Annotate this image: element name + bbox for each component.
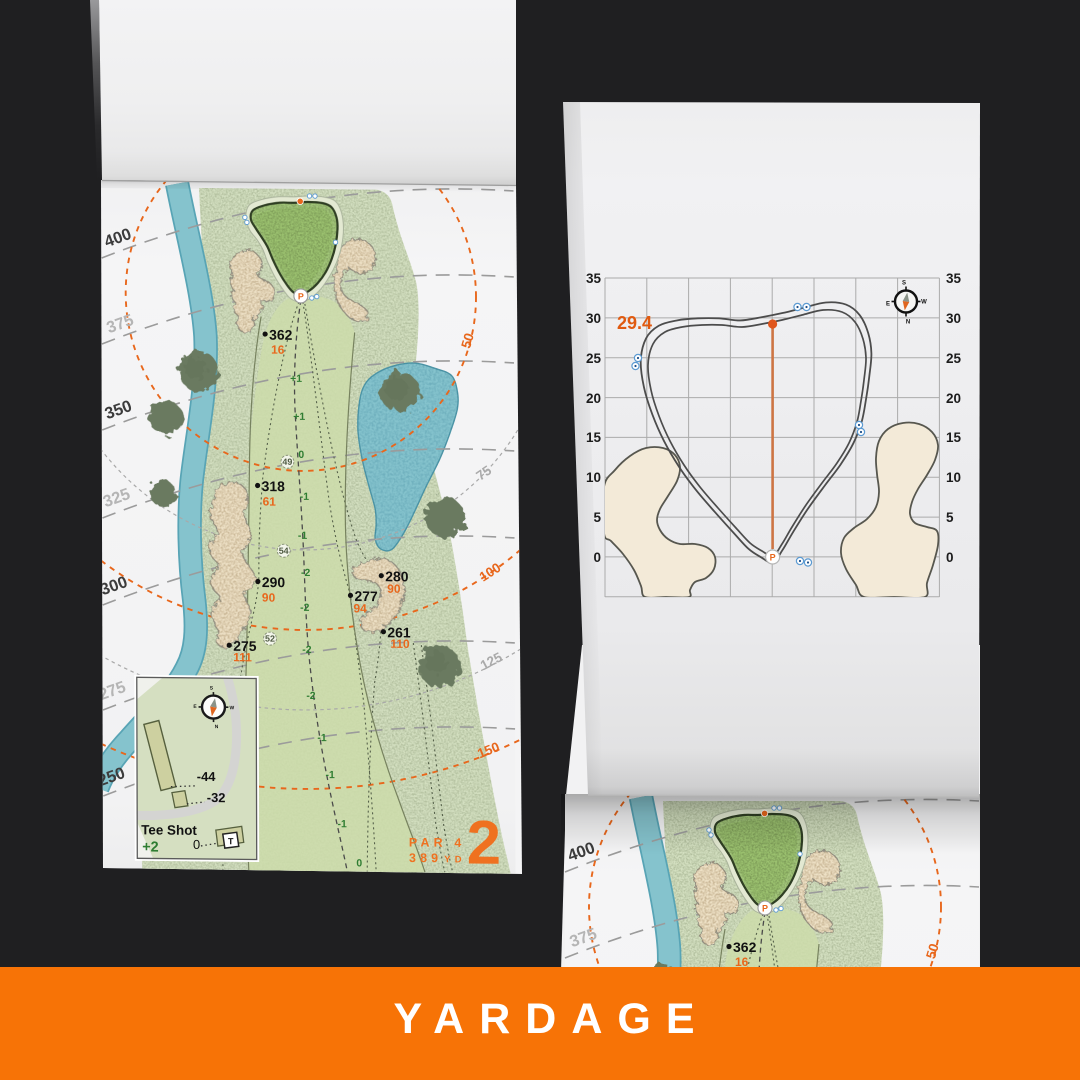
svg-text:S: S [902, 281, 906, 287]
svg-text:0: 0 [946, 550, 954, 565]
svg-text:W: W [921, 300, 927, 306]
svg-text:25: 25 [586, 351, 602, 366]
svg-text:20: 20 [946, 391, 961, 406]
svg-text:10: 10 [586, 470, 601, 485]
svg-text:29.4: 29.4 [617, 313, 652, 333]
svg-text:15: 15 [946, 430, 962, 445]
svg-text:30: 30 [946, 311, 961, 326]
svg-text:5: 5 [946, 510, 954, 525]
svg-text:10: 10 [946, 470, 961, 485]
svg-text:P: P [770, 553, 776, 563]
svg-text:15: 15 [586, 430, 602, 445]
svg-text:25: 25 [946, 351, 962, 366]
svg-text:5: 5 [593, 510, 601, 525]
svg-text:0: 0 [593, 550, 601, 565]
svg-text:E: E [886, 302, 890, 308]
svg-text:20: 20 [586, 391, 601, 406]
svg-text:N: N [906, 320, 910, 326]
svg-text:35: 35 [946, 271, 962, 286]
svg-text:30: 30 [586, 311, 601, 326]
svg-text:YARDAGE: YARDAGE [393, 995, 709, 1043]
svg-text:35: 35 [586, 271, 602, 286]
